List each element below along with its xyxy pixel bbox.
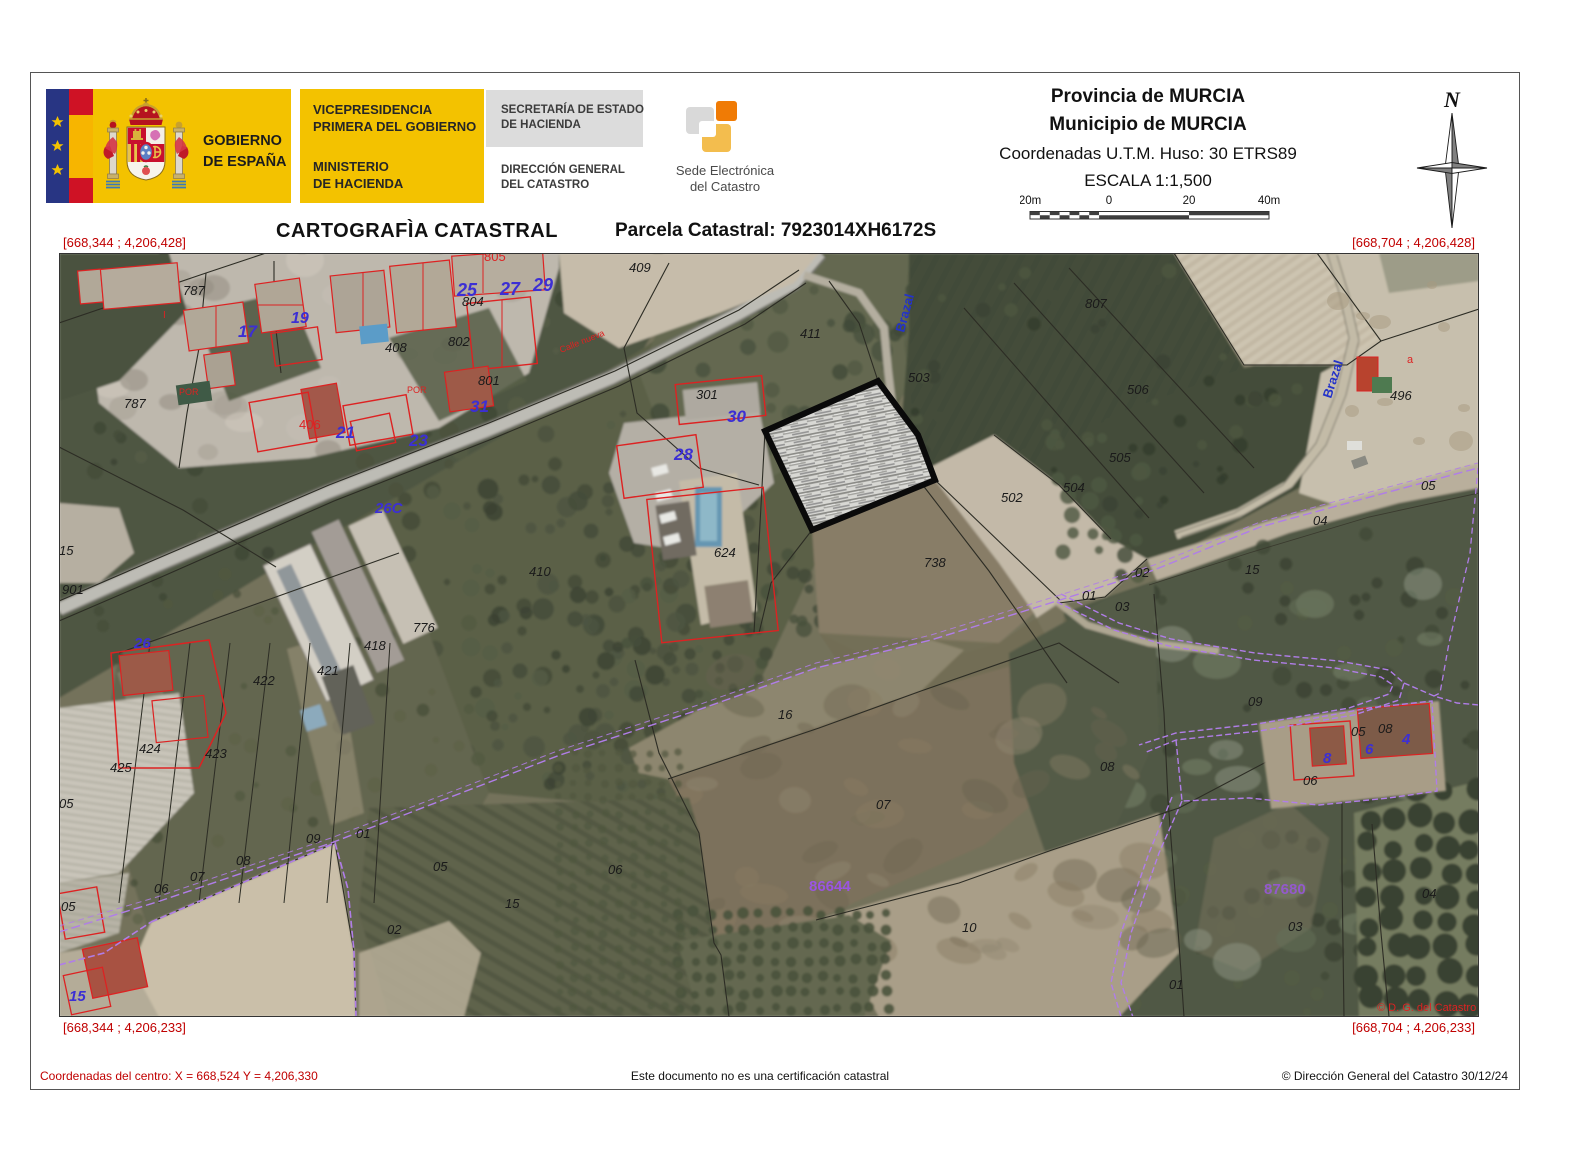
svg-text:787: 787 bbox=[124, 396, 146, 411]
svg-text:21: 21 bbox=[335, 423, 355, 442]
svg-text:08: 08 bbox=[1378, 721, 1393, 736]
svg-text:01: 01 bbox=[356, 826, 370, 841]
svg-text:N: N bbox=[1443, 90, 1461, 112]
svg-text:421: 421 bbox=[317, 663, 339, 678]
svg-text:27: 27 bbox=[499, 279, 521, 299]
svg-text:06: 06 bbox=[154, 881, 169, 896]
svg-text:0: 0 bbox=[1106, 195, 1112, 207]
svg-text:802: 802 bbox=[448, 334, 470, 349]
svg-text:a: a bbox=[1407, 354, 1414, 366]
svg-text:16: 16 bbox=[778, 707, 793, 722]
svg-text:10: 10 bbox=[962, 920, 977, 935]
svg-text:422: 422 bbox=[253, 673, 275, 688]
svg-text:504: 504 bbox=[1063, 480, 1085, 495]
svg-text:23: 23 bbox=[408, 431, 428, 450]
svg-text:04: 04 bbox=[1313, 513, 1327, 528]
svg-text:03: 03 bbox=[1288, 919, 1303, 934]
svg-text:787: 787 bbox=[183, 283, 205, 298]
svg-text:503: 503 bbox=[908, 370, 930, 385]
svg-text:29: 29 bbox=[532, 275, 553, 295]
svg-text:801: 801 bbox=[478, 373, 500, 388]
svg-text:410: 410 bbox=[529, 564, 551, 579]
svg-text:05: 05 bbox=[59, 796, 74, 811]
svg-text:06: 06 bbox=[1303, 773, 1318, 788]
svg-text:408: 408 bbox=[385, 340, 407, 355]
svg-text:901: 901 bbox=[62, 582, 84, 597]
svg-text:09: 09 bbox=[1248, 694, 1262, 709]
svg-text:424: 424 bbox=[139, 741, 161, 756]
svg-text:26: 26 bbox=[133, 635, 151, 652]
svg-text:15: 15 bbox=[69, 988, 86, 1005]
svg-text:28: 28 bbox=[673, 445, 693, 464]
svg-text:776: 776 bbox=[413, 620, 435, 635]
svg-text:06: 06 bbox=[608, 862, 623, 877]
svg-text:6: 6 bbox=[1365, 741, 1374, 758]
svg-text:02: 02 bbox=[387, 922, 402, 937]
svg-text:15: 15 bbox=[59, 543, 74, 558]
svg-text:406: 406 bbox=[299, 417, 321, 432]
svg-text:05: 05 bbox=[1421, 478, 1436, 493]
svg-text:POR: POR bbox=[179, 387, 199, 397]
svg-text:05: 05 bbox=[1351, 724, 1366, 739]
svg-text:425: 425 bbox=[110, 760, 132, 775]
svg-text:04: 04 bbox=[1422, 886, 1436, 901]
svg-text:25: 25 bbox=[456, 280, 478, 300]
svg-text:© D. G. del Catastro: © D. G. del Catastro bbox=[1377, 1002, 1476, 1014]
svg-text:15: 15 bbox=[505, 896, 520, 911]
svg-text:87680: 87680 bbox=[1264, 881, 1306, 898]
svg-text:423: 423 bbox=[205, 746, 227, 761]
svg-text:496: 496 bbox=[1390, 388, 1412, 403]
svg-text:02: 02 bbox=[1135, 565, 1150, 580]
svg-text:505: 505 bbox=[1109, 450, 1131, 465]
svg-text:20: 20 bbox=[1183, 195, 1196, 207]
svg-text:502: 502 bbox=[1001, 490, 1023, 505]
svg-text:I: I bbox=[163, 310, 166, 321]
svg-text:8: 8 bbox=[1323, 750, 1332, 767]
svg-text:624: 624 bbox=[714, 545, 736, 560]
svg-text:19: 19 bbox=[291, 310, 309, 327]
svg-text:01: 01 bbox=[1169, 977, 1183, 992]
svg-text:09: 09 bbox=[306, 831, 320, 846]
svg-text:31: 31 bbox=[470, 397, 489, 416]
svg-text:20m: 20m bbox=[1020, 195, 1041, 207]
svg-text:418: 418 bbox=[364, 638, 386, 653]
svg-text:05: 05 bbox=[433, 859, 448, 874]
svg-text:05: 05 bbox=[61, 899, 76, 914]
svg-text:08: 08 bbox=[236, 853, 251, 868]
svg-text:08: 08 bbox=[1100, 759, 1115, 774]
svg-text:301: 301 bbox=[696, 387, 718, 402]
svg-text:26C: 26C bbox=[374, 500, 404, 517]
svg-text:01: 01 bbox=[1082, 588, 1096, 603]
svg-text:86644: 86644 bbox=[809, 878, 851, 895]
svg-text:738: 738 bbox=[924, 555, 946, 570]
svg-text:409: 409 bbox=[629, 260, 651, 275]
svg-text:506: 506 bbox=[1127, 382, 1149, 397]
svg-text:411: 411 bbox=[800, 326, 821, 341]
svg-text:40m: 40m bbox=[1258, 195, 1280, 207]
svg-text:807: 807 bbox=[1085, 296, 1107, 311]
svg-text:03: 03 bbox=[1115, 599, 1130, 614]
svg-text:07: 07 bbox=[190, 869, 205, 884]
svg-text:4: 4 bbox=[1401, 731, 1411, 748]
svg-text:POR: POR bbox=[407, 385, 427, 395]
svg-text:15: 15 bbox=[1245, 562, 1260, 577]
svg-text:30: 30 bbox=[727, 407, 746, 426]
svg-text:805: 805 bbox=[484, 253, 506, 264]
svg-text:07: 07 bbox=[876, 797, 891, 812]
svg-text:17: 17 bbox=[238, 322, 258, 341]
